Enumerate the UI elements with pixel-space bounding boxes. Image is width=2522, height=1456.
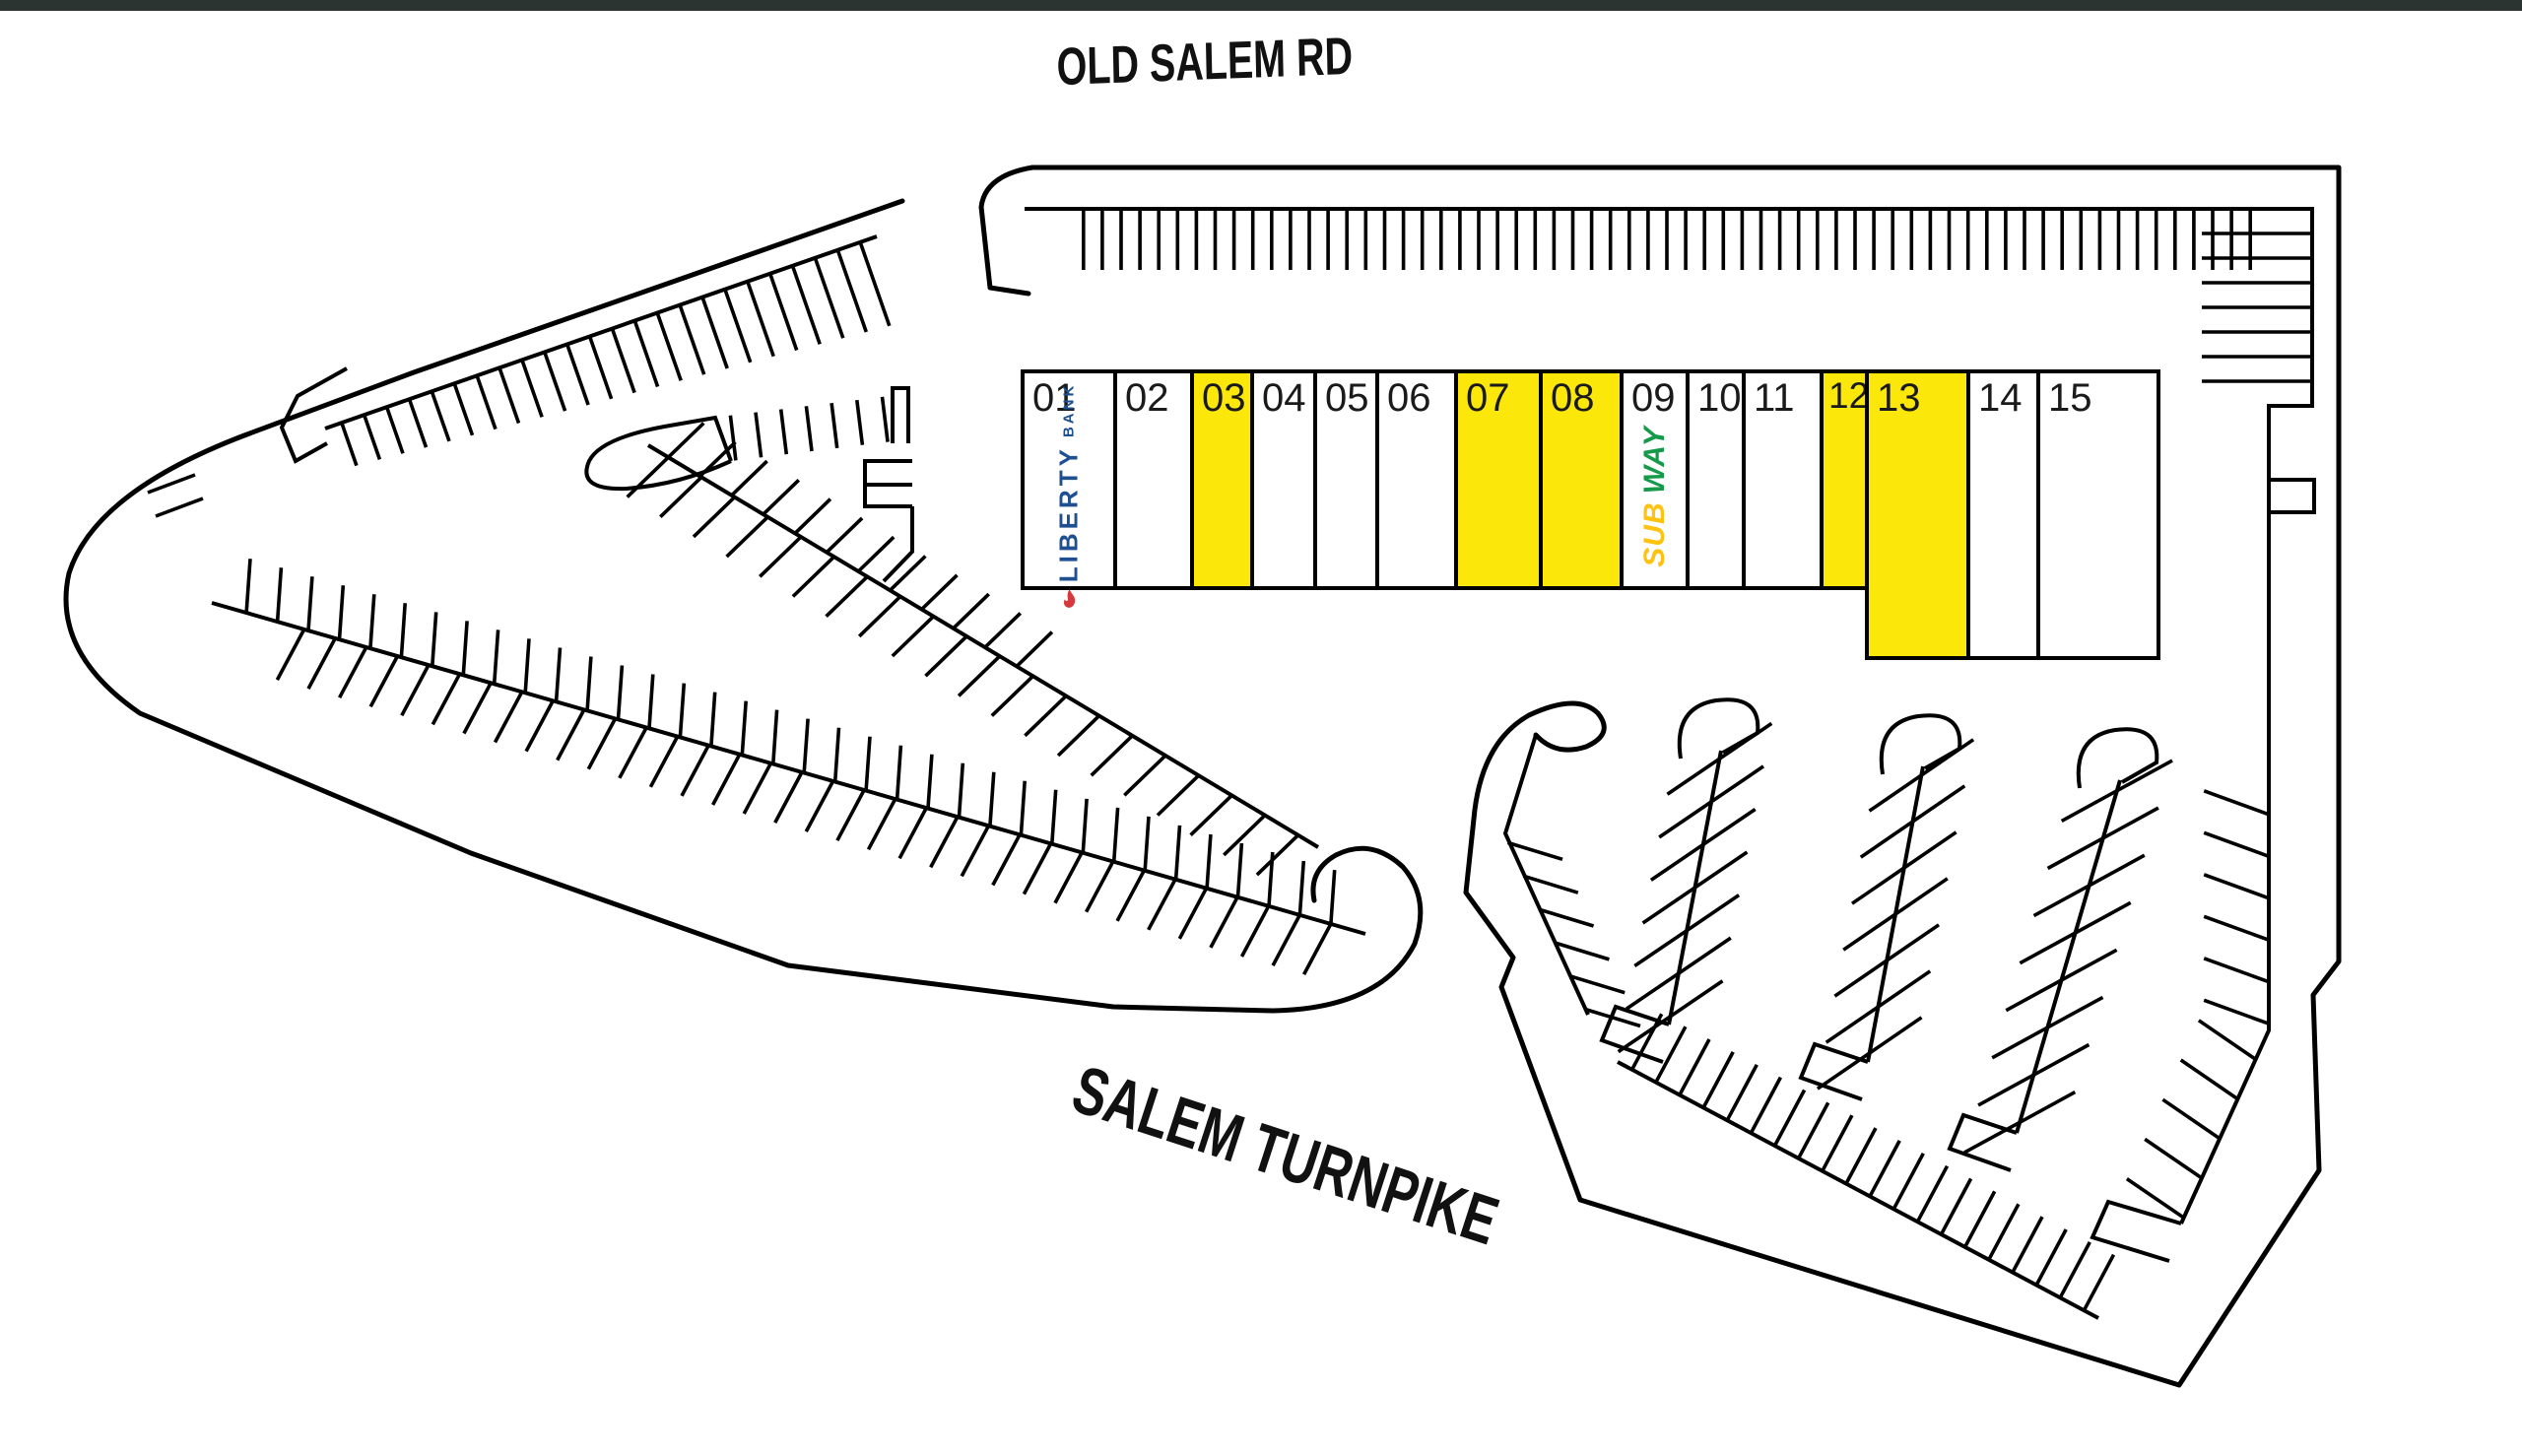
unit-number: 14 <box>1970 373 2036 419</box>
subway-logo: SUBWAY <box>1638 427 1672 567</box>
unit-02[interactable]: 02 <box>1113 369 1194 590</box>
unit-number: 03 <box>1194 373 1250 419</box>
unit-07[interactable]: 07 <box>1454 369 1543 590</box>
se-island3-cap <box>2079 729 2157 788</box>
unit-09[interactable]: 09 SUBWAY <box>1620 369 1690 590</box>
se-island2-cap <box>1882 715 1960 774</box>
site-plan-page: { "roads": { "top": "OLD SALEM RD", "bot… <box>0 0 2522 1456</box>
liberty-suffix: BANK <box>1061 383 1078 437</box>
parking-lot-lineart <box>0 0 2522 1456</box>
subway-sub: SUB <box>1638 502 1672 567</box>
west-lot-end-ticks <box>148 475 203 516</box>
unit-06[interactable]: 06 <box>1375 369 1458 590</box>
unit-15[interactable]: 15 <box>2036 369 2160 660</box>
se-island2-foot <box>1801 1044 1868 1099</box>
unit-14[interactable]: 14 <box>1966 369 2040 660</box>
unit-10[interactable]: 10 <box>1686 369 1746 590</box>
east-row-foot <box>2092 1202 2181 1261</box>
unit-number: 15 <box>2040 373 2157 419</box>
west-lot-island-bracket <box>865 461 912 581</box>
se-island1-cap <box>1680 699 1759 759</box>
unit-number: 11 <box>1746 373 1820 419</box>
unit-number: 06 <box>1379 373 1454 419</box>
unit-11[interactable]: 11 <box>1742 369 1824 590</box>
se-left-row-spine <box>1505 735 1588 1015</box>
unit-05[interactable]: 05 <box>1313 369 1379 590</box>
unit-03[interactable]: 03 <box>1190 369 1254 590</box>
unit-08[interactable]: 08 <box>1539 369 1624 590</box>
unit-number: 12 <box>1824 373 1865 416</box>
unit-number: 02 <box>1117 373 1190 419</box>
west-lot-end-bumps <box>282 368 347 461</box>
unit-number: 05 <box>1317 373 1375 419</box>
liberty-bank-logo: LIBERTY BANK <box>1054 383 1085 611</box>
unit-04[interactable]: 04 <box>1250 369 1317 590</box>
unit-number: 07 <box>1458 373 1539 419</box>
north-strip-spine <box>1025 209 2312 1224</box>
west-lot-island-corridor <box>893 388 908 443</box>
unit-12[interactable]: 12 <box>1820 369 1869 590</box>
east-inner-notch <box>2269 480 2314 512</box>
retail-building: 01 LIBERTY BANK 02 03 04 05 06 07 08 09 … <box>1021 369 2160 660</box>
unit-number: 08 <box>1543 373 1620 419</box>
liberty-name: LIBERTY <box>1054 445 1085 582</box>
unit-number: 09 <box>1624 373 1686 419</box>
se-island1-foot <box>1602 1007 1669 1062</box>
north-strip-west-cap <box>981 167 1032 294</box>
unit-01[interactable]: 01 LIBERTY BANK <box>1021 369 1117 590</box>
unit-number: 13 <box>1869 373 1966 419</box>
southeast-lot <box>1505 699 2157 1318</box>
flame-icon <box>1059 589 1079 613</box>
unit-number: 10 <box>1690 373 1742 419</box>
unit-number: 04 <box>1254 373 1313 419</box>
unit-13[interactable]: 13 <box>1865 369 1970 660</box>
subway-way: WAY <box>1638 427 1672 495</box>
